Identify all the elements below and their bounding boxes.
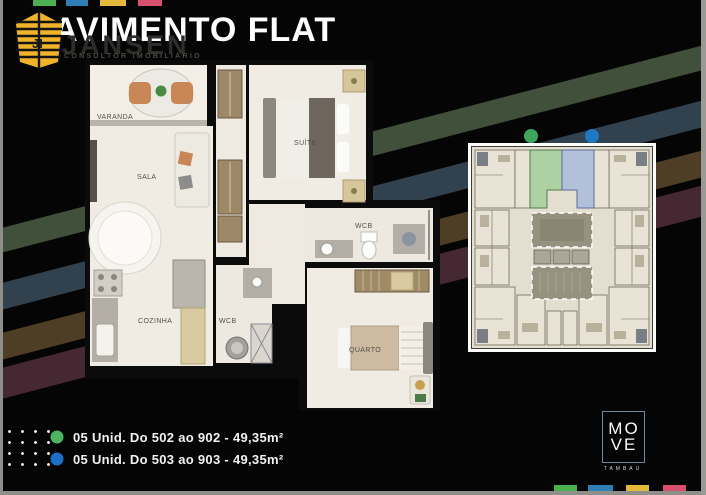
blue-legend-dot-icon: [50, 452, 64, 466]
brand-tagline: CONSULTOR IMOBILIÁRIO: [64, 53, 202, 60]
suite-blanket: [309, 98, 335, 178]
pillow: [337, 104, 349, 134]
flyer-page: AVIMENTO FLAT JI JANSEN CONSULTOR IMOBIL…: [0, 0, 706, 495]
pillow: [178, 151, 193, 166]
varanda-label: VARANDA: [97, 114, 133, 121]
top-accent-squares: [0, 0, 200, 6]
legend-text-502: 05 Unid. Do 502 ao 902 - 49,35m²: [73, 430, 283, 445]
stove: [94, 270, 122, 296]
quarto-label: QUARTO: [349, 347, 381, 354]
dots-pattern: [2, 424, 50, 474]
wcb-suite-label: WCB: [355, 223, 373, 230]
green-unit-dot-icon: [524, 129, 538, 143]
kitchen-island: [173, 260, 205, 308]
move-logo-box: MO VE: [602, 411, 645, 463]
tv-panel: [90, 140, 97, 202]
quarto-headboard: [423, 322, 433, 374]
dining-table-top: [98, 211, 152, 265]
plant: [156, 86, 167, 97]
right-frame-edge: [701, 0, 706, 495]
legend-item: 05 Unid. Do 502 ao 902 - 49,35m²: [50, 426, 283, 448]
suite-label: SUÍTE: [294, 138, 317, 147]
elevators: [534, 250, 589, 264]
bottom-frame-edge: [0, 491, 706, 495]
building-key-plan: [468, 143, 656, 352]
move-tambau-logo: MO VE TAMBAU: [600, 411, 646, 472]
legend-item: 05 Unid. Do 503 ao 903 - 49,35m²: [50, 448, 283, 470]
varanda-chair: [129, 82, 151, 104]
move-line2: VE: [605, 437, 644, 454]
varanda-chair: [171, 82, 193, 104]
jansen-logo-icon: JI: [14, 10, 64, 70]
pillow: [337, 142, 349, 172]
kitchen-cabinet: [181, 308, 205, 364]
green-legend-dot-icon: [50, 430, 64, 444]
core-bottom: [532, 267, 592, 299]
apartment-floor-plan: VARANDA SALA SUÍTE WCB COZINHA WCB QUART…: [85, 60, 440, 410]
sala-label: SALA: [137, 174, 157, 181]
legend-text-503: 05 Unid. Do 503 ao 903 - 49,35m²: [73, 452, 283, 467]
legend: 05 Unid. Do 502 ao 902 - 49,35m² 05 Unid…: [50, 426, 283, 470]
sofa: [175, 133, 209, 207]
suite-bench: [263, 98, 276, 178]
blue-unit-dot-icon: [585, 129, 599, 143]
wcb-social-label: WCB: [219, 318, 237, 325]
move-sub-brand: TAMBAU: [600, 466, 646, 472]
cozinha-label: COZINHA: [138, 318, 172, 325]
pillow: [178, 175, 193, 190]
kitchen-sink: [96, 324, 114, 356]
left-frame-edge: [0, 0, 3, 495]
svg-text:JI: JI: [32, 36, 43, 51]
